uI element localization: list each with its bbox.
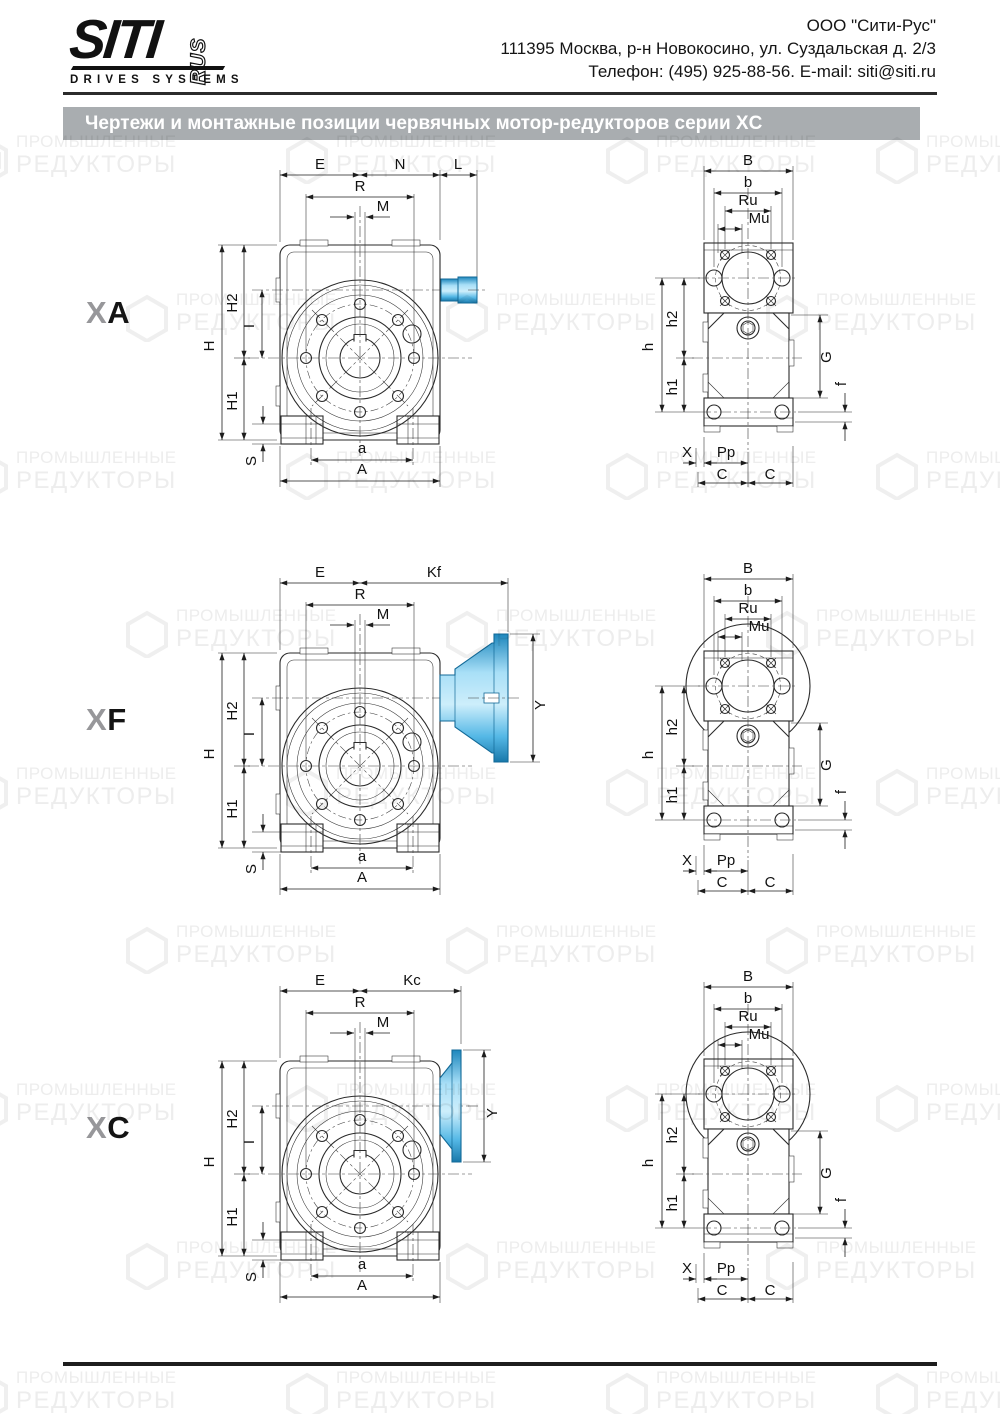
xa-side-view	[692, 188, 802, 450]
company-phone-email: Телефон: (495) 925-88-56. E-mail: siti@s…	[500, 60, 936, 83]
dim-label: M	[377, 1014, 390, 1031]
dim-label: H	[201, 341, 218, 352]
dim-label: G	[818, 759, 835, 771]
siti-logo: SITI RUS DRIVES SYSTEMS	[70, 14, 250, 86]
hexagon-icon	[285, 1372, 329, 1414]
dim-label: H	[201, 1157, 218, 1168]
dim-label: f	[833, 1197, 850, 1202]
dim-label: C	[765, 874, 776, 891]
xc-side-view	[692, 1004, 802, 1266]
dim-label: Kf	[427, 564, 442, 581]
dim-label: L	[454, 156, 462, 173]
header-divider	[63, 92, 937, 95]
dim-label: A	[357, 869, 367, 886]
xc-front-view	[248, 1010, 472, 1272]
dim-label: h1	[664, 1195, 681, 1212]
company-name: ООО "Сити-Рус"	[500, 14, 936, 37]
page-title: Чертежи и монтажные позиции червячных мо…	[85, 113, 762, 135]
hexagon-icon	[875, 1372, 919, 1414]
variant-label-xf: XF	[86, 702, 127, 738]
dim-label: h2	[664, 719, 681, 736]
dim-label: C	[717, 466, 728, 483]
dim-label: Pp	[717, 852, 735, 869]
dim-label: h1	[664, 379, 681, 396]
dim-label: G	[818, 351, 835, 363]
siti-logo-text: SITI	[67, 14, 161, 64]
dim-label: Y	[532, 700, 549, 710]
company-contact-block: ООО "Сити-Рус" 111395 Москва, р-н Новоко…	[500, 14, 936, 83]
footer-divider	[63, 1362, 937, 1366]
catalog-page: ПРОМЫШЛЕННЫЕРЕДУКТОРЫ ПРОМЫШЛЕННЫЕРЕДУКТ…	[0, 0, 1000, 1414]
xa-drawing-row: E N L R M H H2 I H1 S a A B b Ru Mu h h2…	[0, 150, 1000, 500]
dim-label: A	[357, 1277, 367, 1294]
dim-label: B	[743, 968, 753, 985]
dim-label: Kc	[403, 972, 421, 989]
dim-label: f	[833, 381, 850, 386]
dim-label: Pp	[717, 1260, 735, 1277]
dim-label: Ru	[738, 192, 757, 209]
dim-label: Ru	[738, 600, 757, 617]
logo-underline	[71, 66, 225, 70]
dim-label: M	[377, 606, 390, 623]
title-bar: Чертежи и монтажные позиции червячных мо…	[63, 107, 920, 140]
logo-subtitle: DRIVES SYSTEMS	[70, 74, 250, 86]
dim-label: Mu	[749, 210, 770, 227]
dim-label: h1	[664, 787, 681, 804]
dim-label: Mu	[749, 1026, 770, 1043]
dim-label: a	[358, 1256, 367, 1273]
dim-label: A	[357, 461, 367, 478]
xa-front-view	[248, 194, 472, 456]
xc-drawing-row: E Kc R M H H2 I H1 S a A Y B b Ru Mu h h…	[0, 966, 1000, 1316]
dim-label: B	[743, 560, 753, 577]
dim-label: a	[358, 848, 367, 865]
dim-label: B	[743, 152, 753, 169]
dim-label: Ru	[738, 1008, 757, 1025]
dim-label: X	[682, 852, 692, 869]
dim-label: R	[355, 586, 366, 603]
dim-label: b	[744, 582, 752, 599]
dim-label: X	[682, 1260, 692, 1277]
dim-label: H2	[224, 1109, 241, 1128]
dim-label: C	[765, 1282, 776, 1299]
xf-side-view	[692, 596, 802, 858]
dim-label: H	[201, 749, 218, 760]
watermark: ПРОМЫШЛЕННЫЕРЕДУКТОРЫ	[605, 1368, 817, 1414]
dim-label: H1	[224, 1207, 241, 1226]
dim-label: X	[682, 444, 692, 461]
siti-logo-rus-text: RUS	[187, 38, 211, 85]
hexagon-icon	[0, 1372, 9, 1414]
dim-label: a	[358, 440, 367, 457]
variant-label-xa: XA	[86, 295, 130, 331]
dim-label: Mu	[749, 618, 770, 635]
dim-label: S	[243, 1272, 260, 1282]
watermark: ПРОМЫШЛЕННЫЕРЕДУКТОРЫ	[0, 1368, 177, 1414]
dim-label: H1	[224, 799, 241, 818]
dim-label: h	[640, 343, 657, 351]
dim-label: E	[315, 972, 325, 989]
dim-label: H2	[224, 293, 241, 312]
dim-label: S	[243, 456, 260, 466]
dim-label: Y	[484, 1108, 501, 1118]
dim-label: I	[241, 732, 258, 736]
dim-label: h2	[664, 1127, 681, 1144]
watermark: ПРОМЫШЛЕННЫЕРЕДУКТОРЫ	[285, 1368, 497, 1414]
dim-label: f	[833, 789, 850, 794]
dim-label: H2	[224, 701, 241, 720]
dim-label: H1	[224, 391, 241, 410]
dim-label: R	[355, 994, 366, 1011]
xf-drawing-row: E Kf R M H H2 I H1 S a A Y B b Ru Mu h h…	[0, 558, 1000, 908]
dim-label: C	[765, 466, 776, 483]
company-address: 111395 Москва, р-н Новокосино, ул. Сузда…	[500, 37, 936, 60]
watermark: ПРОМЫШЛЕННЫЕРЕДУКТОРЫ	[875, 1368, 1000, 1414]
dim-label: b	[744, 990, 752, 1007]
dim-label: E	[315, 156, 325, 173]
dim-label: Pp	[717, 444, 735, 461]
dim-label: C	[717, 1282, 728, 1299]
dim-label: C	[717, 874, 728, 891]
dim-label: G	[818, 1167, 835, 1179]
dim-label: b	[744, 174, 752, 191]
hexagon-icon	[605, 1372, 649, 1414]
dim-label: E	[315, 564, 325, 581]
dim-label: h	[640, 1159, 657, 1167]
dim-label: I	[241, 324, 258, 328]
dim-label: h	[640, 751, 657, 759]
dim-label: N	[395, 156, 406, 173]
dim-label: h2	[664, 311, 681, 328]
xf-front-view	[248, 602, 472, 864]
dim-label: M	[377, 198, 390, 215]
dim-label: R	[355, 178, 366, 195]
dim-label: S	[243, 864, 260, 874]
dim-label: I	[241, 1140, 258, 1144]
variant-label-xc: XC	[86, 1110, 130, 1146]
